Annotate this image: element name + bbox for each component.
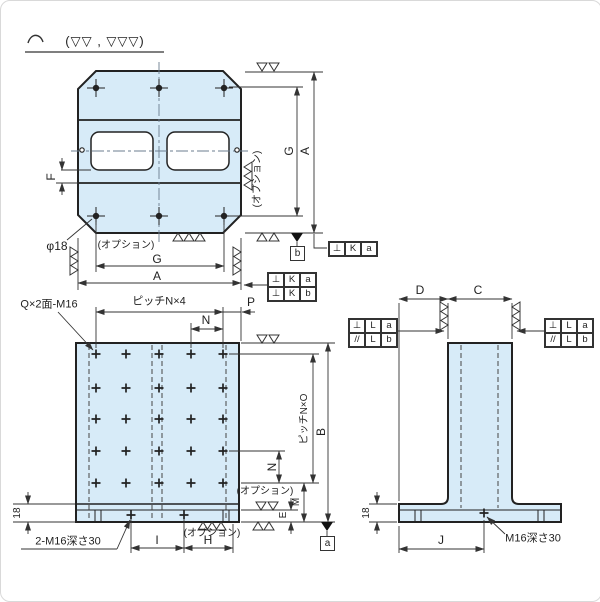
dim-label-i: I bbox=[155, 534, 158, 546]
fcf-symbol: // bbox=[349, 333, 365, 347]
tolerance-frame-side-right: ⊥ L a // L b bbox=[544, 318, 594, 348]
dim-label-m: M bbox=[292, 498, 302, 506]
tolerance-frame-top-right: ⊥ K a bbox=[328, 241, 378, 257]
dim-label-h: H bbox=[204, 534, 213, 546]
fcf-symbol: ⊥ bbox=[349, 319, 365, 333]
dim-label-a-bottom: A bbox=[153, 270, 161, 282]
tolerance-frame-stack: ⊥ K a ⊥ K b bbox=[267, 272, 317, 302]
m16-depth-label: M16深さ30 bbox=[505, 534, 561, 545]
dim-label-n-top: N bbox=[202, 314, 211, 326]
dim-label-b: B bbox=[315, 428, 327, 436]
fcf-symbol: ⊥ bbox=[268, 273, 284, 287]
dim-label-f: F bbox=[45, 173, 57, 180]
thread-count-label: Q×2面-M16 bbox=[20, 300, 77, 311]
datum-b-box: b bbox=[290, 246, 305, 261]
dim-label-e: E bbox=[279, 512, 289, 519]
fcf-datum: b bbox=[381, 333, 397, 347]
dim-label-18-side: 18 bbox=[362, 507, 372, 518]
fcf-datum: a bbox=[300, 273, 316, 287]
fcf-tolerance: K bbox=[345, 242, 361, 256]
pitch-horizontal-label: ピッチN×4 bbox=[132, 297, 186, 308]
datum-a-symbol bbox=[321, 522, 333, 536]
fcf-datum: a bbox=[361, 242, 377, 256]
dim-label-d: D bbox=[416, 284, 425, 296]
option-label-top-right: (オプション) bbox=[253, 151, 263, 208]
dim-label-c: C bbox=[474, 284, 483, 296]
option-label-front-right: (オプション) bbox=[237, 487, 294, 497]
fcf-datum: b bbox=[577, 333, 593, 347]
side-view-part bbox=[399, 343, 561, 522]
fcf-symbol: ⊥ bbox=[329, 242, 345, 256]
fcf-symbol: ⊥ bbox=[545, 319, 561, 333]
dim-label-n-right: N bbox=[266, 463, 278, 472]
fcf-datum: a bbox=[381, 319, 397, 333]
base-thread-label: 2-M16深さ30 bbox=[35, 537, 100, 548]
dim-label-18-front: 18 bbox=[13, 507, 23, 518]
fcf-symbol: // bbox=[545, 333, 561, 347]
fcf-tolerance: L bbox=[365, 333, 381, 347]
hole-diameter-label: φ18 bbox=[46, 240, 67, 252]
front-view-part bbox=[76, 343, 239, 522]
phi18-leader bbox=[67, 219, 92, 240]
top-view-part bbox=[71, 62, 248, 242]
base-thread-leader bbox=[117, 520, 130, 549]
finish-marks-side-view bbox=[440, 302, 520, 330]
fcf-symbol: ⊥ bbox=[268, 287, 284, 301]
option-label-top-bottom: (オプション) bbox=[98, 241, 155, 251]
tolerance-frame-side-left: ⊥ L a // L b bbox=[348, 318, 398, 348]
fcf-datum: a bbox=[577, 319, 593, 333]
fcf-tolerance: K bbox=[284, 273, 300, 287]
fcf-tolerance: L bbox=[365, 319, 381, 333]
dim-label-g-bottom: G bbox=[152, 253, 161, 265]
dim-label-p: P bbox=[247, 296, 255, 308]
surface-finish-note: (▽▽ , ▽▽▽) bbox=[65, 35, 144, 48]
datum-b-symbol bbox=[291, 233, 303, 246]
dim-label-g-right: G bbox=[283, 146, 295, 155]
fcf-tolerance: K bbox=[284, 287, 300, 301]
technical-drawing-canvas: (▽▽ , ▽▽▽) G A (オプション) G A (オプション) F φ18… bbox=[0, 0, 600, 602]
fcf-tolerance: L bbox=[561, 333, 577, 347]
fcf-tolerance: L bbox=[561, 319, 577, 333]
dim-label-j: J bbox=[438, 534, 444, 546]
pitch-vertical-label: ピッチN×O bbox=[300, 394, 310, 445]
dim-label-a-right: A bbox=[299, 147, 311, 155]
fcf-datum: b bbox=[300, 287, 316, 301]
datum-a-box: a bbox=[320, 536, 335, 551]
